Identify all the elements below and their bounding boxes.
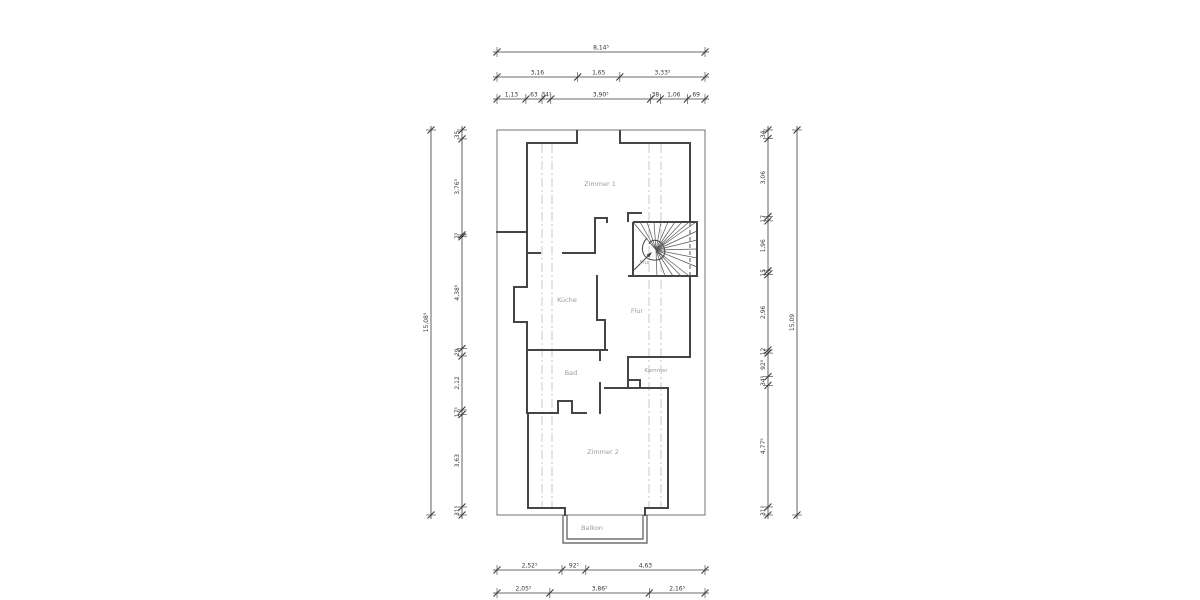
- dim-label: 8,14⁵: [593, 45, 609, 52]
- dim-label: 3,06: [760, 171, 767, 185]
- dim-label: 34⁵: [541, 92, 552, 99]
- room-label-balkon: Balkon: [581, 524, 603, 532]
- dim-label: 2,12: [454, 376, 461, 390]
- dim-label: 3,63: [454, 454, 461, 468]
- room-label-zimmer2: Zimmer 2: [587, 448, 619, 456]
- room-label-zimmer1: Zimmer 1: [584, 180, 616, 188]
- dim-label: 3,90⁵: [593, 92, 609, 99]
- dim-label: 17⁵: [454, 407, 461, 418]
- dim-label: 15,08⁵: [423, 312, 430, 332]
- dim-left-total: 15,08⁵: [423, 126, 436, 519]
- dim-right-total: 15,09: [789, 126, 802, 519]
- wall-kueche-top: [527, 218, 607, 253]
- dim-bottom-balcony: 2,52⁵92⁵4,63: [493, 563, 709, 576]
- dim-label: 31⁵: [760, 505, 767, 516]
- dim-label: 12: [760, 348, 767, 356]
- balcony: [563, 515, 647, 543]
- dim-label: 15: [760, 269, 767, 277]
- dim-label: 4,38⁵: [454, 284, 461, 300]
- dim-label: 1,65: [592, 70, 606, 77]
- dim-top-main: 3,161,653,33⁵: [493, 70, 709, 83]
- dim-label: 1,06: [667, 92, 681, 99]
- dim-label: 29: [454, 348, 461, 356]
- dim-label: 4,63: [639, 563, 653, 570]
- room-label-bad: Bad: [565, 369, 578, 377]
- dim-label: 3,16: [531, 70, 545, 77]
- room-label-kammer: Kammer: [644, 368, 668, 374]
- wall-bad: [527, 350, 600, 413]
- dim-label: 15,09: [789, 314, 796, 331]
- dim-label: 4,77⁵: [760, 438, 767, 454]
- dim-label: 31⁵: [454, 505, 461, 516]
- dim-top-total: 8,14⁵: [493, 45, 709, 58]
- dim-label: 3,33⁵: [655, 70, 671, 77]
- dim-label: 3,86⁵: [592, 586, 608, 593]
- dim-label: 92⁵: [569, 563, 580, 570]
- dim-right-detail: 343,06171,96152,961292⁵34⁵4,77⁵31⁵: [760, 126, 773, 519]
- room-label-kueche: Küche: [557, 296, 577, 304]
- wall-flur-divider: [527, 276, 607, 350]
- dim-label: 2,05⁵: [516, 586, 532, 593]
- dim-label: 35: [454, 130, 461, 138]
- dim-label: 34⁵: [760, 375, 767, 386]
- dim-top-detail: 1,136334⁵3,90⁵381,0669: [493, 92, 709, 105]
- floor-plan-canvas: Zimmer 1 Flur Küche Flur Bad Kammer Zimm…: [0, 0, 1200, 600]
- dim-label: 1,96: [760, 239, 767, 253]
- dim-bottom-detail: 2,05⁵3,86⁵2,16⁵: [493, 586, 709, 599]
- dim-label: 63: [530, 92, 538, 99]
- staircase: [628, 213, 697, 276]
- wall-kueche-bay: [514, 287, 527, 350]
- room-label-flur-stair: Flur: [640, 260, 651, 266]
- dim-label: 38: [652, 92, 660, 99]
- dim-label: 34: [760, 130, 767, 138]
- dim-label: 7⁵: [454, 232, 461, 239]
- dim-label: 1,13: [505, 92, 519, 99]
- dim-label: 69: [692, 92, 700, 99]
- dim-label: 17: [760, 215, 767, 223]
- floor-plan-page: Zimmer 1 Flur Küche Flur Bad Kammer Zimm…: [0, 0, 1200, 600]
- dim-left-detail: 353,76⁵7⁵4,38⁵292,1217⁵3,6331⁵: [454, 126, 467, 519]
- dim-label: 92⁵: [760, 359, 767, 370]
- dim-label: 2,16⁵: [669, 586, 685, 593]
- room-label-flur: Flur: [631, 307, 644, 315]
- dim-label: 3,76⁵: [454, 178, 461, 194]
- dim-label: 2,52⁵: [522, 563, 538, 570]
- dim-label: 2,96: [760, 305, 767, 319]
